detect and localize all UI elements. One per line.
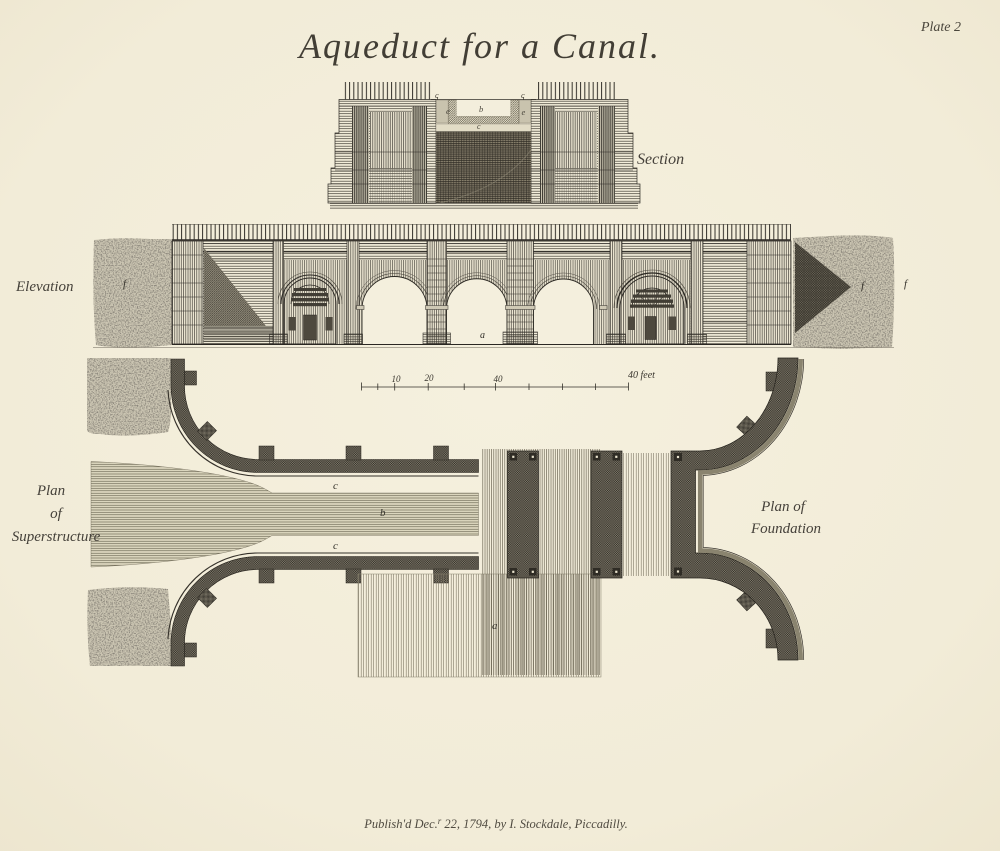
svg-text:Section: Section <box>637 151 684 168</box>
svg-text:c: c <box>333 480 338 492</box>
svg-text:c: c <box>435 90 439 100</box>
svg-text:e: e <box>522 107 526 117</box>
svg-text:Aqueduct for a Canal.: Aqueduct for a Canal. <box>297 26 661 66</box>
svg-text:a: a <box>492 620 498 632</box>
svg-text:a: a <box>480 330 485 341</box>
svg-text:Publish'd Dec.r 22, 1794, by I: Publish'd Dec.r 22, 1794, by I. Stockdal… <box>363 816 627 831</box>
svg-text:20: 20 <box>425 373 435 383</box>
svg-text:Plate 2: Plate 2 <box>920 20 961 35</box>
svg-text:of: of <box>50 506 64 522</box>
svg-text:Elevation: Elevation <box>15 279 73 295</box>
svg-text:c: c <box>477 122 481 131</box>
svg-text:b: b <box>479 104 483 114</box>
svg-text:Plan of: Plan of <box>760 499 807 515</box>
svg-text:40: 40 <box>494 374 504 384</box>
svg-text:Foundation: Foundation <box>750 521 821 537</box>
svg-text:b: b <box>380 507 386 519</box>
svg-text:c: c <box>333 540 338 552</box>
svg-text:40 feet: 40 feet <box>628 370 655 381</box>
svg-text:Superstructure: Superstructure <box>12 529 101 545</box>
svg-text:c: c <box>521 90 525 100</box>
svg-text:e: e <box>446 106 450 116</box>
svg-text:10: 10 <box>392 374 402 384</box>
svg-text:Plan: Plan <box>36 483 65 499</box>
